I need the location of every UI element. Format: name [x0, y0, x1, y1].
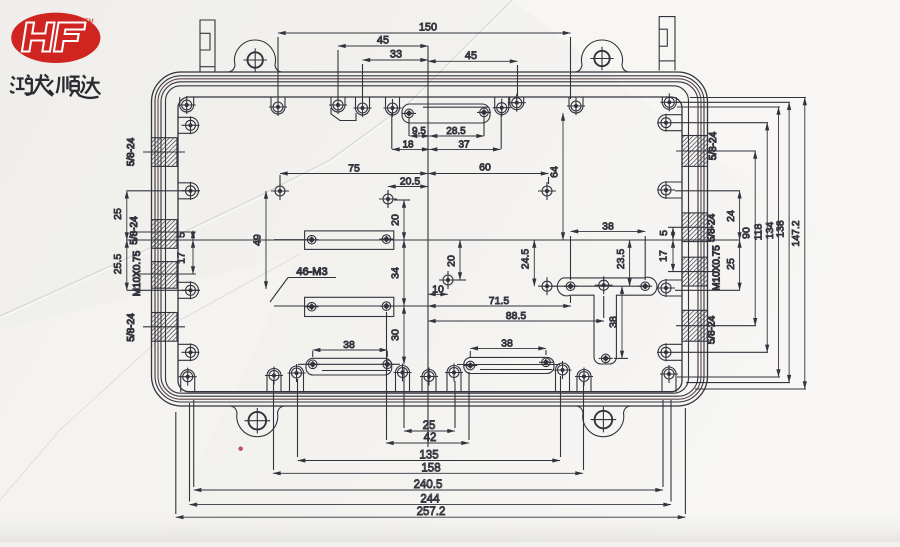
svg-text:90: 90: [741, 227, 753, 239]
svg-text:23.5: 23.5: [615, 249, 627, 270]
svg-text:M10X0.75: M10X0.75: [132, 250, 143, 296]
svg-text:38: 38: [602, 220, 614, 232]
svg-text:5/8-24: 5/8-24: [126, 313, 137, 342]
svg-text:38: 38: [501, 337, 513, 349]
svg-text:17: 17: [658, 250, 670, 262]
svg-text:118: 118: [753, 223, 765, 240]
svg-text:20: 20: [390, 214, 402, 226]
svg-text:33: 33: [390, 49, 402, 61]
svg-text:TM: TM: [85, 19, 94, 25]
svg-text:24: 24: [725, 210, 737, 222]
svg-text:135: 135: [419, 450, 438, 462]
svg-text:25: 25: [423, 420, 436, 432]
svg-text:38: 38: [608, 316, 620, 328]
svg-text:M10X0.75: M10X0.75: [712, 245, 723, 291]
svg-text:46-M3: 46-M3: [296, 266, 327, 278]
svg-text:150: 150: [419, 22, 437, 34]
svg-text:5: 5: [658, 230, 670, 236]
svg-text:5/8-24: 5/8-24: [707, 315, 718, 344]
svg-text:88.5: 88.5: [506, 310, 527, 322]
svg-text:5/8-24: 5/8-24: [126, 137, 137, 166]
svg-text:18: 18: [402, 139, 414, 150]
svg-text:9.5: 9.5: [412, 126, 426, 137]
svg-text:24.5: 24.5: [520, 249, 532, 270]
svg-text:75: 75: [348, 163, 360, 175]
svg-text:20: 20: [446, 255, 458, 267]
svg-text:244: 244: [420, 494, 440, 506]
svg-text:138: 138: [775, 220, 787, 238]
svg-text:64: 64: [549, 166, 561, 178]
svg-text:34: 34: [390, 267, 402, 279]
svg-text:49: 49: [252, 234, 264, 246]
svg-text:5/8-24: 5/8-24: [707, 213, 718, 242]
svg-text:17: 17: [176, 252, 188, 264]
svg-text:5/8-24: 5/8-24: [708, 131, 719, 160]
svg-text:10: 10: [432, 283, 444, 295]
svg-text:38: 38: [343, 339, 355, 351]
svg-text:25.5: 25.5: [112, 254, 124, 275]
svg-text:240.5: 240.5: [414, 479, 443, 491]
svg-text:42: 42: [424, 432, 437, 444]
svg-text:257.2: 257.2: [417, 506, 446, 518]
svg-text:30: 30: [390, 329, 402, 341]
svg-text:45: 45: [377, 35, 389, 47]
svg-text:20.5: 20.5: [400, 176, 421, 188]
svg-text:25: 25: [725, 258, 737, 270]
svg-text:37: 37: [458, 139, 470, 150]
svg-text:28.5: 28.5: [446, 126, 466, 137]
svg-text:158: 158: [421, 462, 440, 474]
svg-text:147.2: 147.2: [790, 220, 802, 246]
svg-text:60: 60: [479, 162, 491, 174]
svg-text:71.5: 71.5: [489, 295, 510, 307]
svg-text:5/8-24: 5/8-24: [129, 216, 140, 245]
svg-text:5: 5: [176, 232, 188, 238]
svg-text:25: 25: [112, 208, 124, 220]
svg-text:45: 45: [465, 50, 477, 62]
